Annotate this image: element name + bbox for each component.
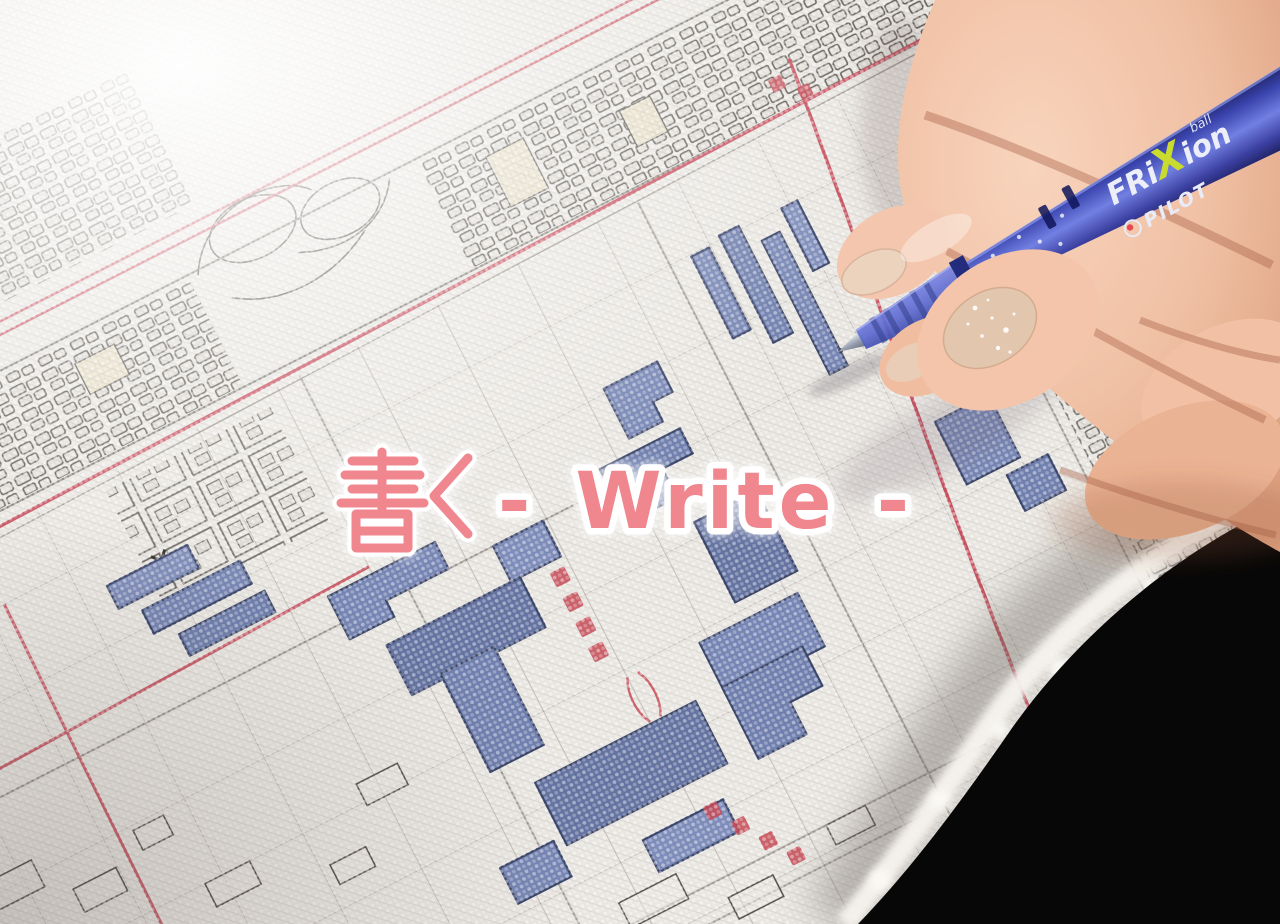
photo-scene: FRiXion ball PILOT: [0, 0, 1280, 924]
title-latin-text: - Write -: [498, 457, 913, 547]
photo-canvas: FRiXion ball PILOT: [0, 0, 1280, 924]
